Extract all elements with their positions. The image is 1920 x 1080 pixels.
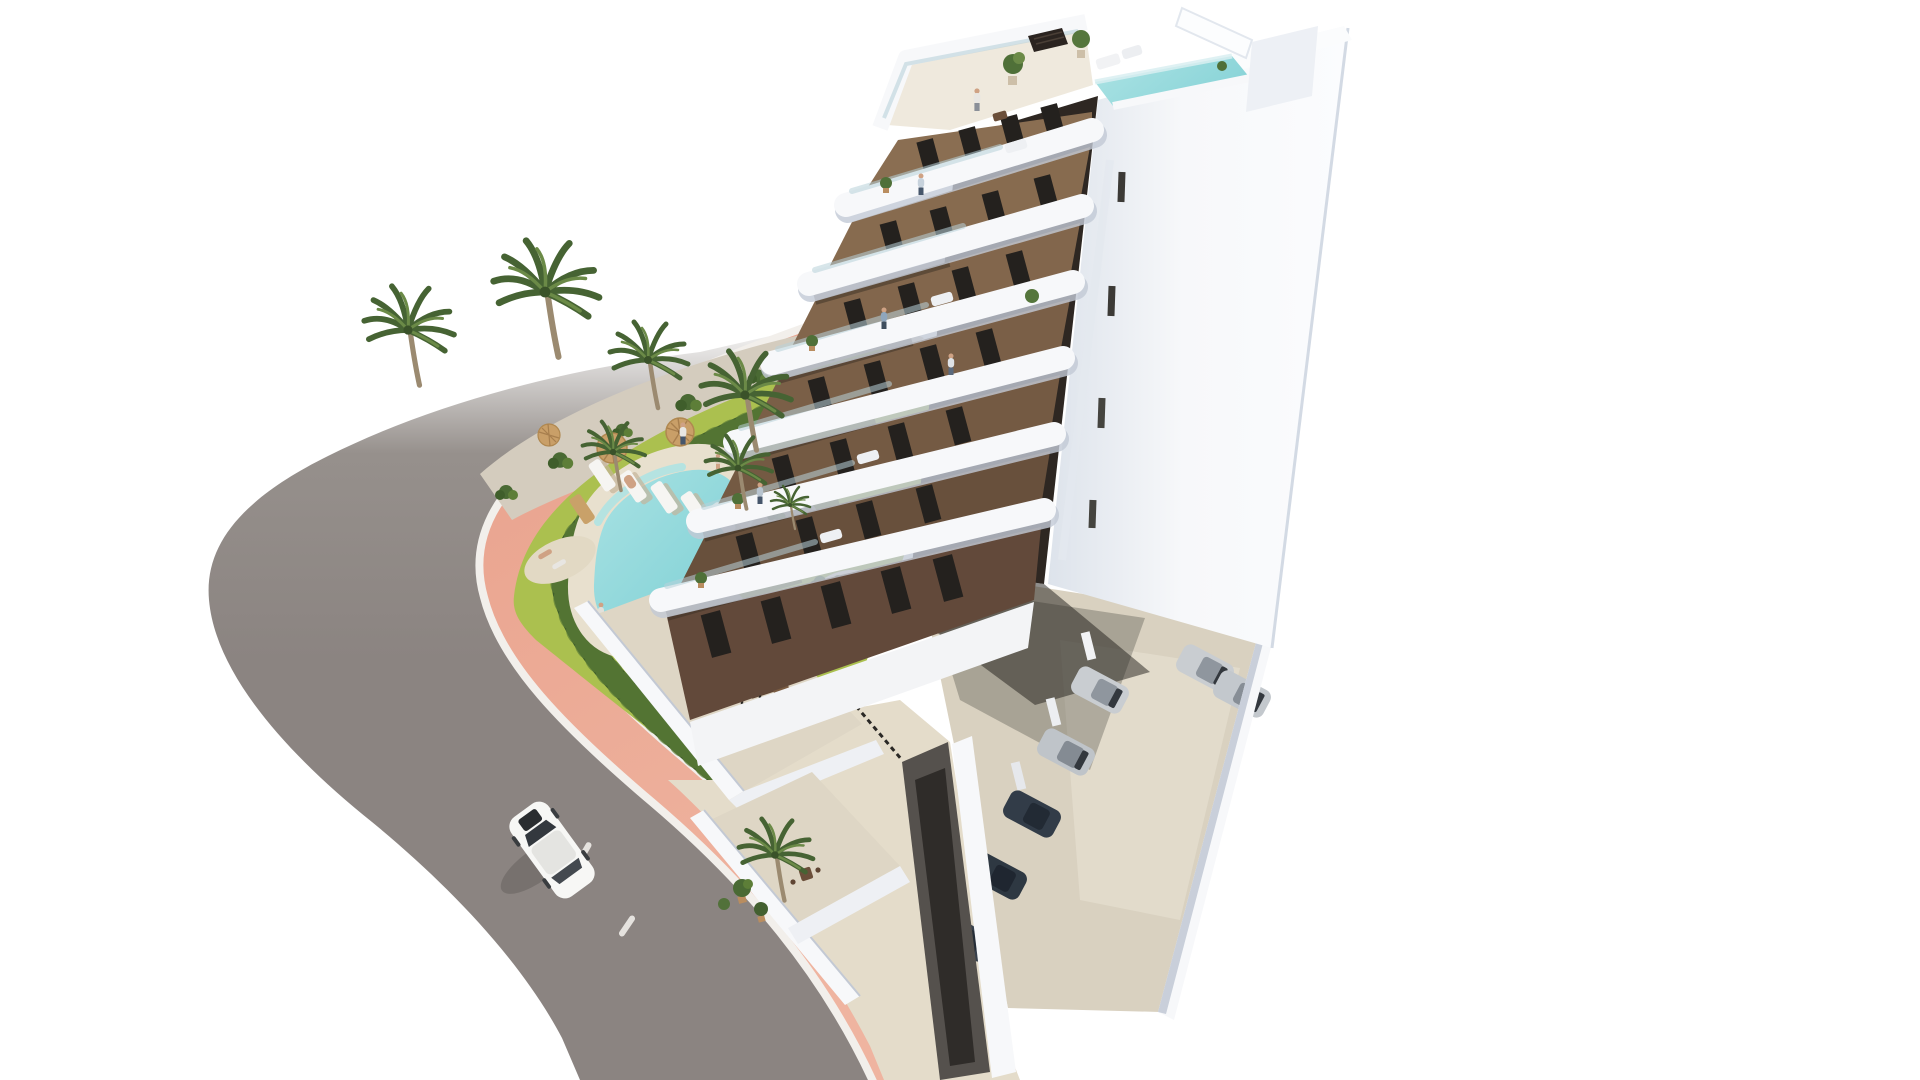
stair-window-slit: [1089, 500, 1097, 528]
person-rooftop: [974, 88, 981, 111]
person-lawn: [680, 422, 687, 444]
render-canvas: [0, 0, 1920, 1080]
person-balcony: [948, 354, 954, 376]
person-balcony: [918, 174, 924, 196]
stair-window-slit: [1107, 286, 1115, 316]
rooftop-sofa: [1121, 44, 1143, 59]
parasol: [538, 424, 560, 446]
person-balcony: [757, 483, 763, 505]
rooftop-sofa: [1095, 53, 1121, 71]
roof-fin: [1176, 8, 1252, 58]
architectural-render-scene: [0, 0, 1920, 1080]
stair-window-slit: [1117, 172, 1125, 202]
person-balcony: [881, 308, 887, 330]
rooftop-pool-plant: [1217, 61, 1227, 71]
stair-window-slit: [1097, 398, 1105, 428]
